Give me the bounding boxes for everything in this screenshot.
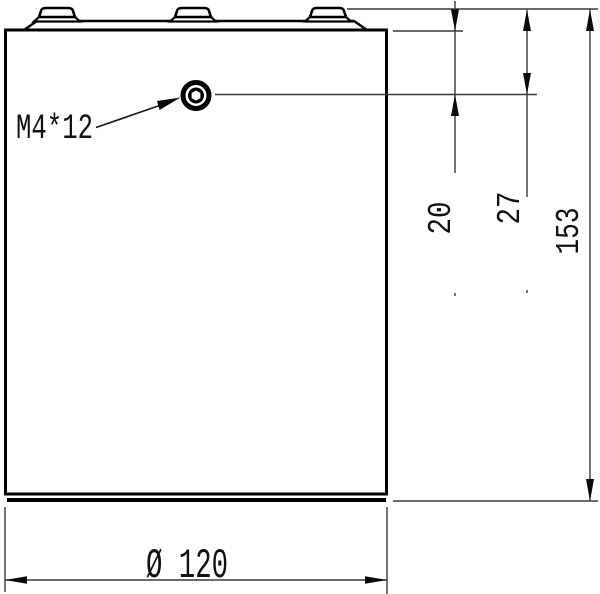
dimension-arrow-left <box>5 576 27 583</box>
dimension-153: 153 <box>551 9 594 501</box>
dimension-arrow-down <box>451 10 459 32</box>
thread-callout-label: M4*12 <box>16 109 93 149</box>
dimension-value-27: 27 <box>492 192 529 225</box>
dimension-27: 27 <box>492 10 531 294</box>
dimension-20: 20 <box>423 1 460 296</box>
dimension-diameter-120: Ø 120 <box>5 542 387 590</box>
dimension-arrow-up <box>523 10 531 32</box>
dimension-arrow-right <box>365 576 387 583</box>
dimension-value-diameter: Ø 120 <box>146 542 228 590</box>
terminal-bump <box>305 8 351 22</box>
terminal-bump <box>170 8 216 22</box>
screw-hole <box>183 83 209 109</box>
dimension-arrow-up <box>451 95 459 117</box>
leader-line <box>96 105 161 128</box>
dimension-arrow-up <box>586 10 594 32</box>
terminal-bump-cap <box>39 8 75 17</box>
extension-lines <box>5 9 598 594</box>
terminal-bump-cap <box>175 8 211 17</box>
dimension-arrow-down <box>586 479 594 501</box>
dimension-value-153: 153 <box>551 208 588 255</box>
dimension-arrow-down <box>523 73 531 95</box>
engineering-drawing: M4*12 20 27 153 Ø 120 <box>0 0 600 594</box>
leader-arrow <box>157 98 181 111</box>
terminal-bump <box>34 8 80 22</box>
dimension-value-20: 20 <box>423 202 460 235</box>
terminal-bump-cap <box>310 8 346 17</box>
thread-callout: M4*12 <box>16 98 181 150</box>
